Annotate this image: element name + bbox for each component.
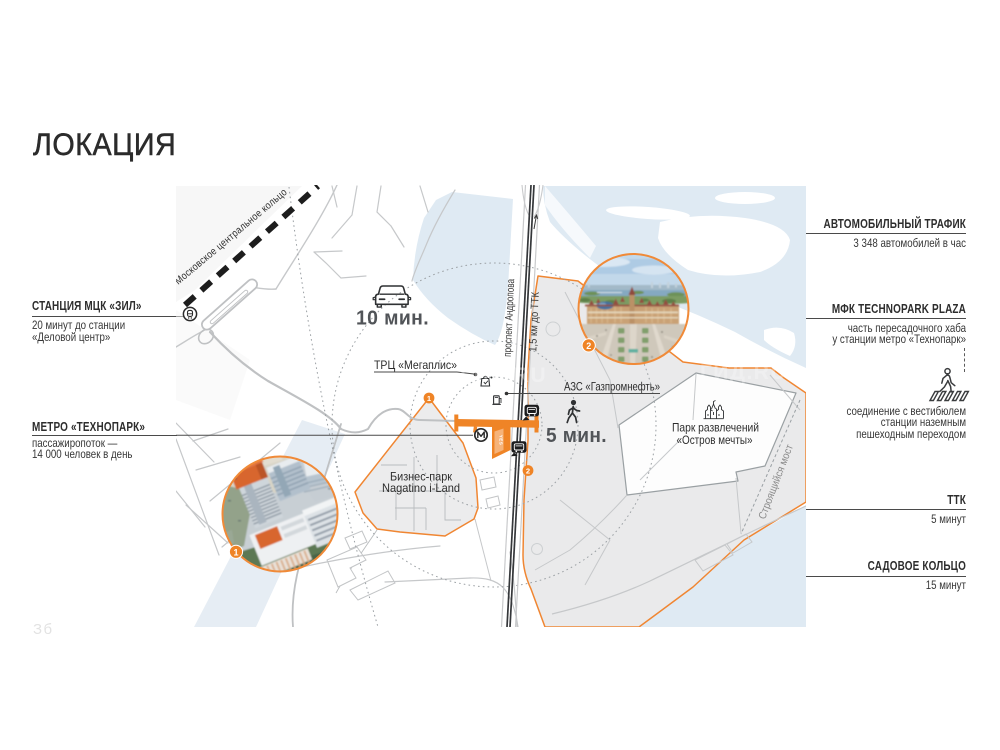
svg-text:АЗС «Газпромнефть»: АЗС «Газпромнефть» <box>564 380 660 394</box>
svg-text:2: 2 <box>586 341 591 351</box>
svg-text:5 мин.: 5 мин. <box>546 424 607 447</box>
svg-text:ГИД.RU: ГИД.RU <box>460 364 547 387</box>
svg-text:YES: YES <box>499 435 504 445</box>
svg-text:проспект Андропова: проспект Андропова <box>502 279 517 357</box>
svg-text:Nagatino i-Land: Nagatino i-Land <box>382 481 460 495</box>
svg-text:«Остров мечты»: «Остров мечты» <box>677 433 753 447</box>
svg-text:ТРЦ «Мегаплис»: ТРЦ «Мегаплис» <box>374 358 457 372</box>
svg-text:ГИД.RU: ГИД.RU <box>700 361 787 384</box>
svg-text:10 мин.: 10 мин. <box>356 307 429 330</box>
svg-text:1: 1 <box>233 547 238 557</box>
svg-text:2: 2 <box>526 467 530 476</box>
